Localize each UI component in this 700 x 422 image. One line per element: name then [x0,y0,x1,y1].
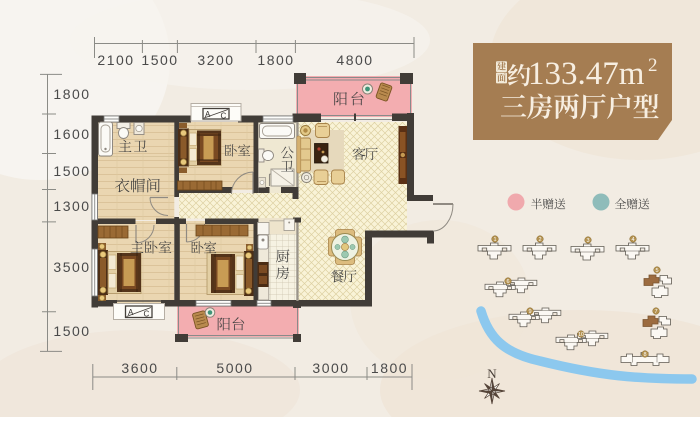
svg-text:3600: 3600 [121,360,158,376]
svg-text:C: C [144,310,150,319]
svg-text:10: 10 [578,332,584,338]
svg-text:1300: 1300 [53,198,90,214]
svg-text:7: 7 [654,309,657,315]
svg-text:4800: 4800 [336,52,373,68]
svg-text:6: 6 [506,279,509,285]
svg-text:5: 5 [655,268,658,274]
svg-text:4: 4 [631,237,634,243]
svg-text:1800: 1800 [371,360,408,376]
svg-text:A: A [128,308,134,317]
svg-text:1800: 1800 [53,86,90,102]
svg-text:1500: 1500 [53,163,90,179]
svg-text:2100: 2100 [97,52,134,68]
svg-text:2: 2 [648,55,658,76]
svg-text:A: A [205,110,211,119]
svg-text:3500: 3500 [53,259,90,275]
svg-text:1500: 1500 [53,323,90,339]
svg-text:1500: 1500 [141,52,178,68]
svg-text:3000: 3000 [312,360,349,376]
svg-text:1800: 1800 [257,52,294,68]
svg-text:1600: 1600 [53,126,90,142]
svg-text:3200: 3200 [197,52,234,68]
svg-text:1: 1 [493,237,496,243]
svg-text:8: 8 [643,352,646,358]
svg-text:5000: 5000 [216,360,253,376]
svg-text:N: N [487,366,497,381]
svg-text:2: 2 [538,237,541,243]
svg-text:9: 9 [528,309,531,315]
svg-text:C: C [221,112,227,121]
svg-text:3: 3 [586,238,589,244]
svg-text:133.47m: 133.47m [528,56,645,92]
